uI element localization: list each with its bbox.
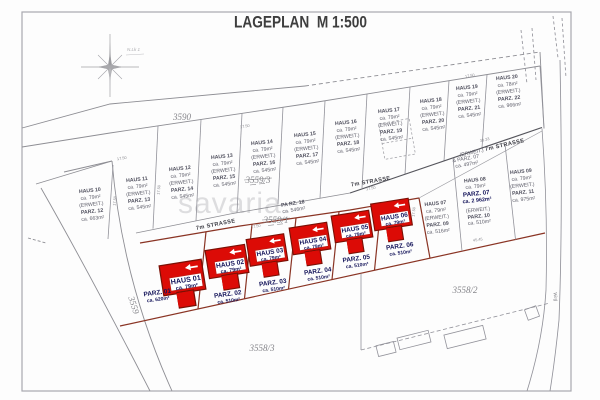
svg-text:3558/2: 3558/2	[451, 285, 478, 295]
svg-text:3558/3: 3558/3	[248, 343, 275, 353]
svg-text:3559/1: 3559/1	[262, 215, 288, 225]
svg-text:N.Lk 1: N.Lk 1	[127, 47, 141, 52]
svg-text:3590: 3590	[172, 112, 192, 122]
svg-text:LAGEPLAN M 1:500: LAGEPLAN M 1:500	[234, 14, 367, 32]
svg-text:3559/3: 3559/3	[244, 175, 271, 185]
